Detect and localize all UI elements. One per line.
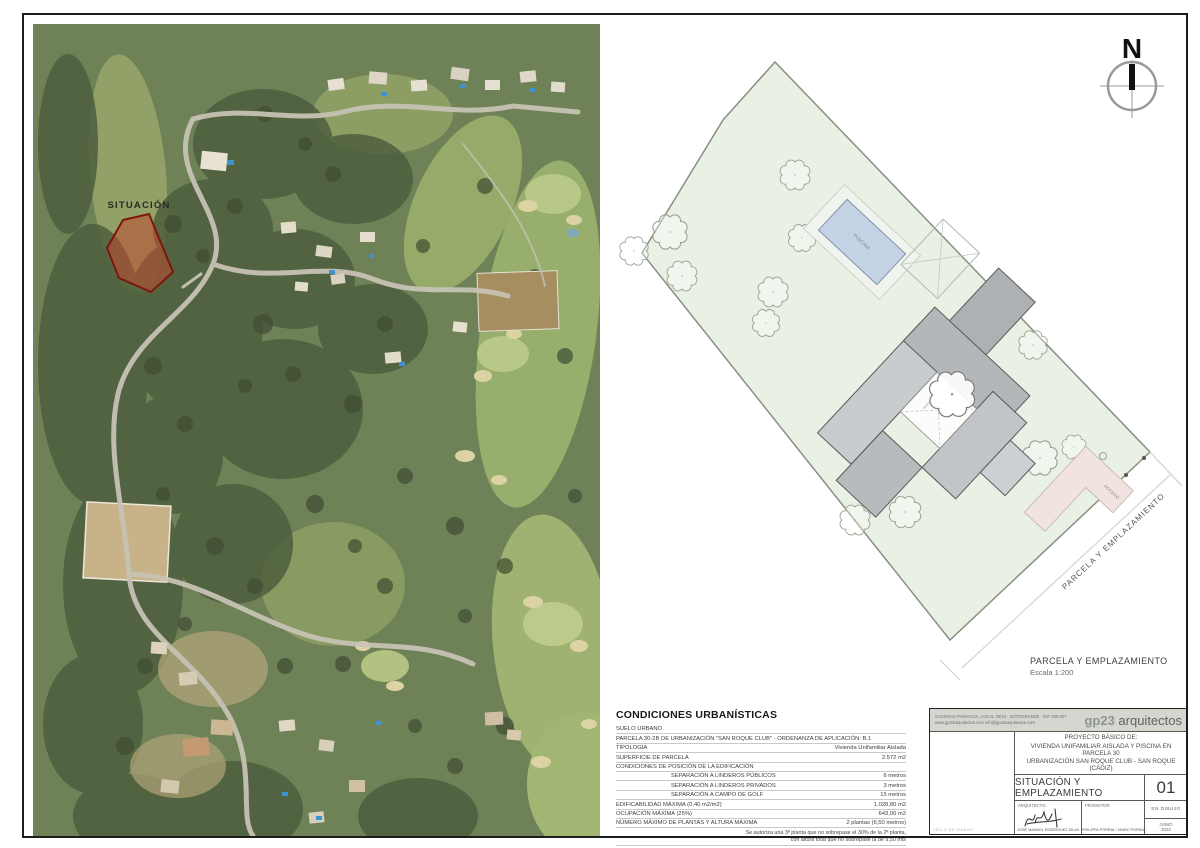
drawing-sheet: SITUACIÓN N — [0, 0, 1200, 848]
table-row: CONDICIONES DE POSICIÓN DE LA EDIFICACIÓ… — [616, 763, 906, 772]
title-block: GALERÍAS PANIAGUA, LOCAL 25/24 - SOTOGRA… — [929, 708, 1188, 835]
north-needle — [1129, 64, 1135, 90]
stamp-label: SELLO DE VISADO — [933, 828, 973, 832]
table-note: Se autoriza una 3ª planta que no sobrepa… — [616, 828, 906, 846]
situacion-label: SITUACIÓN — [107, 199, 170, 211]
project-description: PROYECTO BÁSICO DE: VIVIENDA UNIFAMILIAR… — [1015, 732, 1187, 775]
table-row: EDIFICABILIDAD MÁXIMA (0,40 m2/m2)1.028,… — [616, 800, 906, 809]
table-row: TIPOLOGÍAVivienda Unifamiliar Aislada — [616, 744, 906, 753]
architect-signature — [1015, 806, 1081, 830]
table-row: OCUPACIÓN MÁXIMA (25%)643,00 m2 — [616, 810, 906, 819]
promoter-box: PROMOTOR: PHILIPPA PORRAL / MARC PORRAL — [1082, 801, 1145, 834]
status-box: EN DIBUJO — [1145, 801, 1187, 819]
table-row: SEPARACIÓN A LINDEROS PÚBLICOS6 metros — [616, 772, 906, 781]
aerial-photo: SITUACIÓN — [33, 24, 600, 836]
contact-info: GALERÍAS PANIAGUA, LOCAL 25/24 - SOTOGRA… — [935, 714, 1066, 725]
plan-caption: PARCELA Y EMPLAZAMIENTO Escala 1:200 — [1030, 656, 1168, 677]
architect-box: ARQUITECTO: JOSÉ MANUEL RODRÍGUEZ SILVA — [1015, 801, 1082, 834]
firm-logo: gp23 arquitectos — [1084, 713, 1182, 728]
condiciones-title: CONDICIONES URBANÍSTICAS — [616, 709, 906, 721]
north-label: N — [1122, 33, 1142, 64]
title-block-header: GALERÍAS PANIAGUA, LOCAL 25/24 - SOTOGRA… — [930, 709, 1187, 732]
sheet-title: SITUACIÓN Y EMPLAZAMIENTO — [1015, 775, 1145, 800]
plan-caption-title: PARCELA Y EMPLAZAMIENTO — [1030, 656, 1168, 666]
table-row: SUPERFICIE DE PARCELA2.572 m2 — [616, 753, 906, 762]
table-row: NÚMERO MÁXIMO DE PLANTAS Y ALTURA MÁXIMA… — [616, 819, 906, 828]
stamp-box: SELLO DE VISADO — [930, 732, 1015, 834]
plan-caption-scale: Escala 1:200 — [1030, 668, 1073, 677]
table-row: SEPARACIÓN A LINDEROS PRIVADOS3 metros — [616, 781, 906, 790]
north-compass: N — [1100, 33, 1164, 118]
sheet-number: 01 — [1145, 775, 1187, 800]
date-box: JUNIO 2022 — [1145, 819, 1187, 834]
condiciones-table: CONDICIONES URBANÍSTICAS SUELO URBANO PA… — [616, 709, 906, 846]
table-row: SUELO URBANO — [616, 725, 906, 734]
site-plan: N P — [610, 20, 1190, 680]
table-row: SEPARACIÓN A CAMPO DE GOLF15 metros — [616, 791, 906, 800]
table-row: PARCELA 30-2B DE URBANIZACIÓN "SAN ROQUE… — [616, 734, 906, 743]
